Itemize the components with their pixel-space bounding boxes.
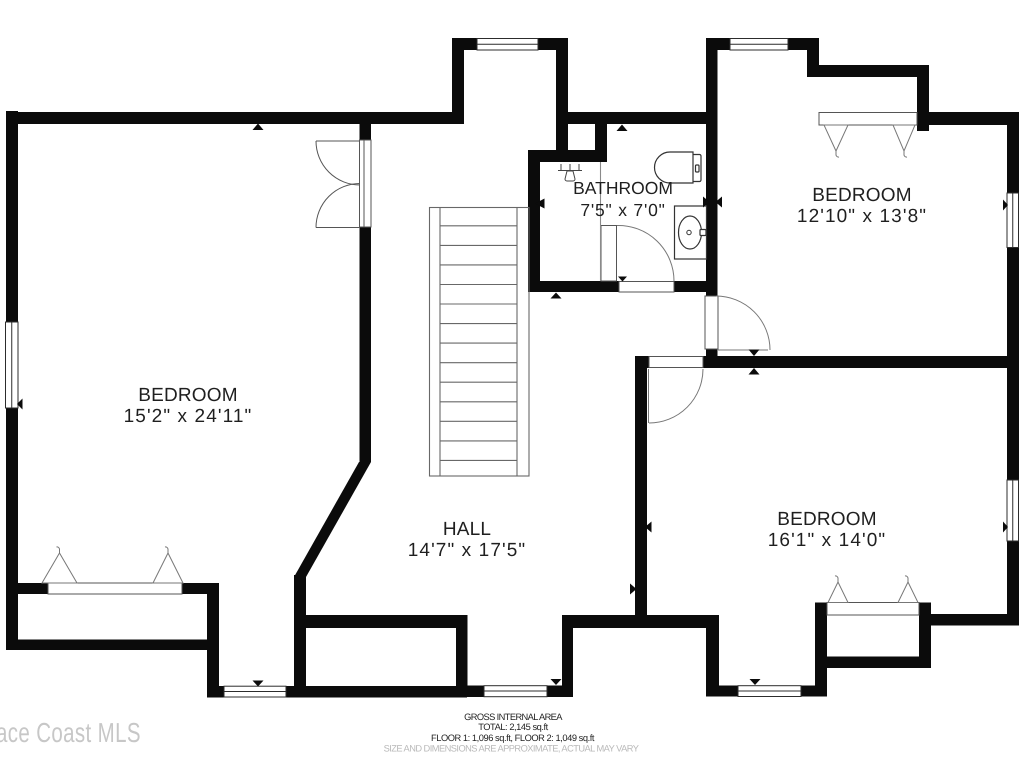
svg-text:14'7" x 17'5": 14'7" x 17'5": [408, 540, 527, 561]
svg-text:FLOOR 1: 1,096 sq.ft, FLOOR 2:: FLOOR 1: 1,096 sq.ft, FLOOR 2: 1,049 sq.…: [431, 733, 595, 743]
svg-text:ace Coast MLS: ace Coast MLS: [0, 717, 141, 748]
svg-text:HALL: HALL: [443, 519, 491, 540]
svg-text:TOTAL: 2,145 sq.ft: TOTAL: 2,145 sq.ft: [478, 722, 548, 732]
svg-text:12'10" x 13'8": 12'10" x 13'8": [797, 206, 927, 227]
svg-text:16'1" x 14'0": 16'1" x 14'0": [768, 530, 887, 551]
svg-text:BATHROOM: BATHROOM: [573, 178, 673, 198]
svg-text:SIZE AND DIMENSIONS ARE APPROX: SIZE AND DIMENSIONS ARE APPROXIMATE, ACT…: [384, 744, 639, 754]
svg-text:GROSS INTERNAL AREA: GROSS INTERNAL AREA: [464, 712, 563, 722]
svg-text:15'2" x 24'11": 15'2" x 24'11": [124, 406, 253, 427]
svg-text:7'5" x 7'0": 7'5" x 7'0": [580, 200, 665, 220]
svg-text:BEDROOM: BEDROOM: [777, 509, 877, 530]
svg-text:BEDROOM: BEDROOM: [138, 385, 238, 406]
svg-text:BEDROOM: BEDROOM: [812, 185, 912, 206]
